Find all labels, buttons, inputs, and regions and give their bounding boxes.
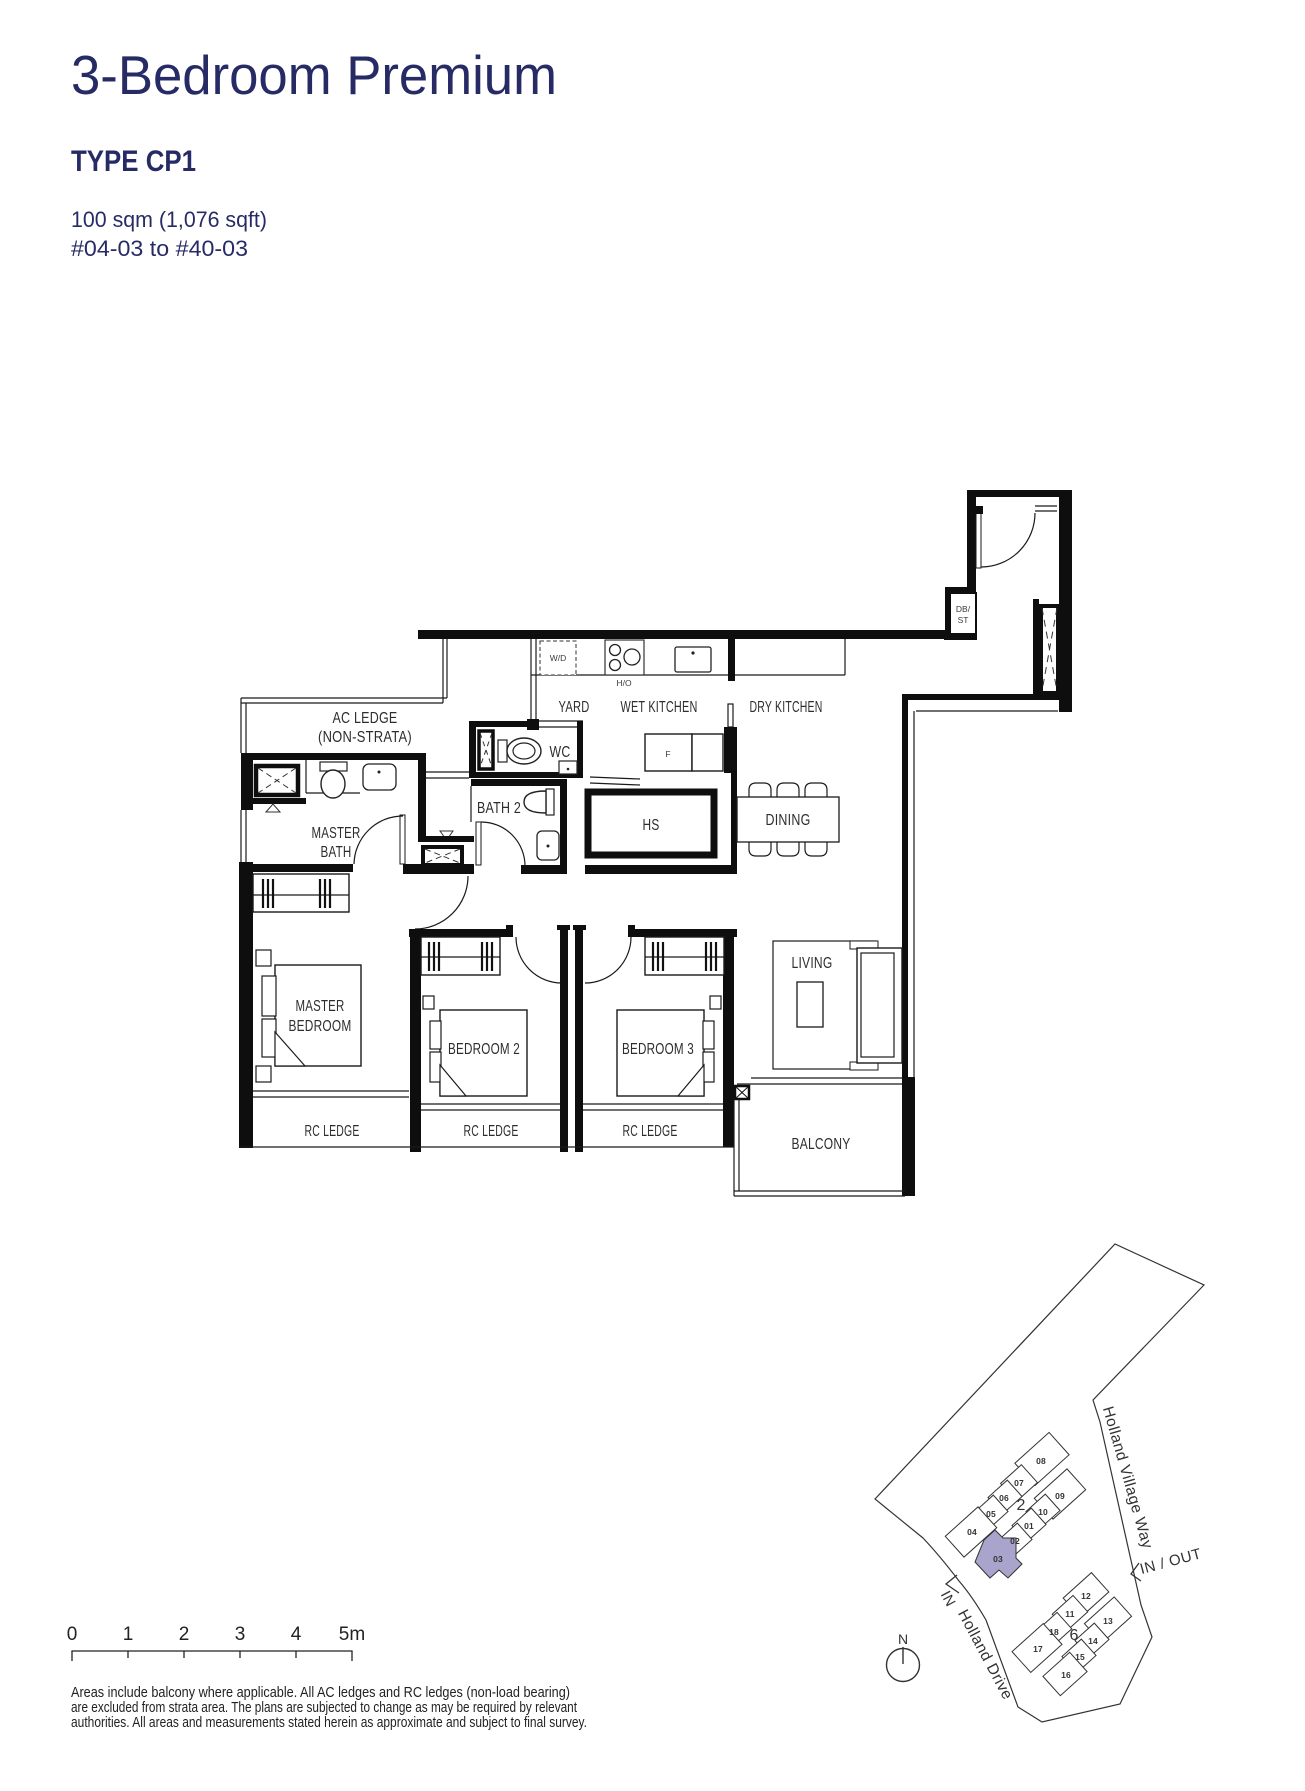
svg-text:DINING: DINING bbox=[766, 812, 811, 829]
svg-text:RC LEDGE: RC LEDGE bbox=[623, 1123, 678, 1140]
svg-text:BEDROOM 2: BEDROOM 2 bbox=[448, 1041, 520, 1058]
svg-text:16: 16 bbox=[1061, 1670, 1071, 1680]
svg-text:W/D: W/D bbox=[550, 653, 567, 663]
svg-text:HS: HS bbox=[643, 817, 660, 834]
svg-text:14: 14 bbox=[1088, 1636, 1098, 1646]
svg-text:MASTER: MASTER bbox=[312, 825, 361, 842]
svg-text:4: 4 bbox=[291, 1624, 302, 1645]
svg-text:1: 1 bbox=[123, 1624, 134, 1645]
svg-text:13: 13 bbox=[1103, 1616, 1113, 1626]
svg-text:RC LEDGE: RC LEDGE bbox=[464, 1123, 519, 1140]
svg-text:18: 18 bbox=[1049, 1627, 1059, 1637]
svg-text:17: 17 bbox=[1033, 1644, 1043, 1654]
svg-text:05: 05 bbox=[986, 1509, 996, 1519]
svg-text:04: 04 bbox=[967, 1527, 977, 1537]
svg-text:2: 2 bbox=[1017, 1497, 1026, 1514]
svg-text:WC: WC bbox=[550, 744, 571, 761]
svg-text:authorities. All areas and mea: authorities. All areas and measurements … bbox=[71, 1715, 587, 1731]
svg-text:3: 3 bbox=[235, 1624, 246, 1645]
svg-text:DRY KITCHEN: DRY KITCHEN bbox=[750, 699, 823, 716]
svg-text:100 sqm (1,076 sqft): 100 sqm (1,076 sqft) bbox=[71, 207, 267, 232]
svg-text:BATH 2: BATH 2 bbox=[477, 800, 521, 817]
svg-text:AC LEDGE: AC LEDGE bbox=[333, 710, 398, 727]
svg-text:06: 06 bbox=[999, 1493, 1009, 1503]
svg-text:N: N bbox=[898, 1631, 908, 1647]
svg-text:BALCONY: BALCONY bbox=[792, 1136, 851, 1153]
svg-text:H/O: H/O bbox=[616, 678, 632, 688]
svg-text:MASTER: MASTER bbox=[296, 998, 345, 1015]
svg-text:5m: 5m bbox=[339, 1624, 365, 1645]
svg-text:ST: ST bbox=[958, 615, 969, 625]
svg-text:11: 11 bbox=[1065, 1609, 1074, 1619]
svg-text:03: 03 bbox=[993, 1554, 1003, 1564]
svg-text:02: 02 bbox=[1010, 1536, 1020, 1546]
svg-text:Areas include balcony where ap: Areas include balcony where applicable. … bbox=[71, 1685, 570, 1701]
svg-text:3-Bedroom Premium: 3-Bedroom Premium bbox=[71, 44, 557, 106]
svg-text:TYPE CP1: TYPE CP1 bbox=[71, 145, 196, 178]
svg-text:WET KITCHEN: WET KITCHEN bbox=[621, 699, 698, 716]
svg-text:01: 01 bbox=[1024, 1521, 1034, 1531]
svg-text:are excluded from strata area.: are excluded from strata area. The plans… bbox=[71, 1700, 577, 1716]
svg-text:10: 10 bbox=[1038, 1507, 1048, 1517]
svg-text:YARD: YARD bbox=[559, 699, 590, 716]
svg-text:DB/: DB/ bbox=[956, 604, 971, 614]
svg-text:BEDROOM: BEDROOM bbox=[289, 1018, 352, 1035]
svg-text:LIVING: LIVING bbox=[792, 955, 833, 972]
svg-text:0: 0 bbox=[67, 1624, 78, 1645]
svg-text:BATH: BATH bbox=[321, 844, 352, 861]
svg-text:RC LEDGE: RC LEDGE bbox=[305, 1123, 360, 1140]
svg-text:15: 15 bbox=[1075, 1652, 1085, 1662]
svg-text:12: 12 bbox=[1081, 1591, 1091, 1601]
svg-text:#04-03 to #40-03: #04-03 to #40-03 bbox=[71, 236, 248, 261]
svg-text:2: 2 bbox=[179, 1624, 190, 1645]
svg-text:07: 07 bbox=[1014, 1478, 1024, 1488]
svg-text:6: 6 bbox=[1070, 1627, 1079, 1644]
svg-text:F: F bbox=[665, 749, 670, 759]
svg-text:(NON-STRATA): (NON-STRATA) bbox=[318, 729, 412, 746]
svg-text:BEDROOM 3: BEDROOM 3 bbox=[622, 1041, 694, 1058]
svg-text:08: 08 bbox=[1036, 1456, 1046, 1466]
svg-text:09: 09 bbox=[1055, 1491, 1065, 1501]
